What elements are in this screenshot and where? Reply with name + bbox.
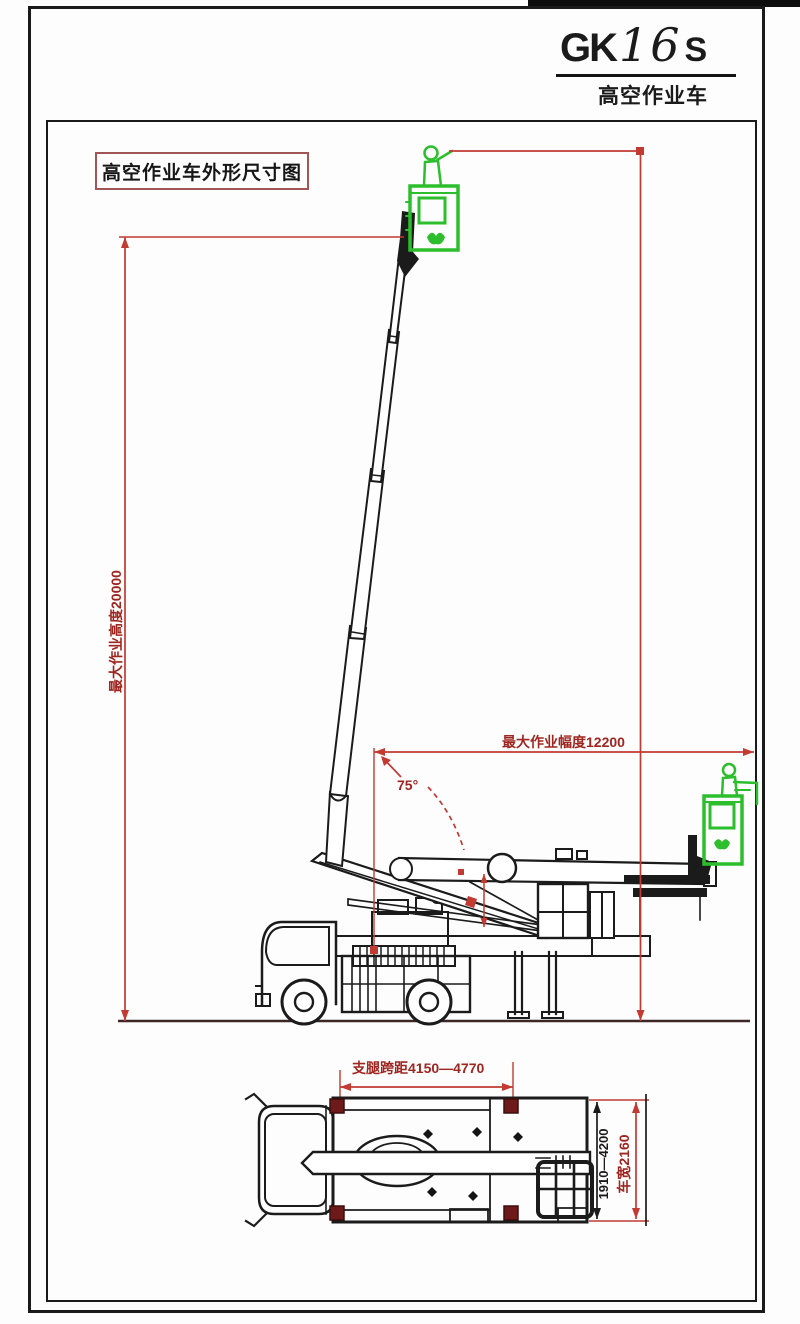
- work-baskets: [406, 147, 757, 865]
- top-operator-figure: [424, 147, 452, 187]
- truck-side-view: [256, 211, 716, 1024]
- dimension-drawing: 最大作业高度20000 最大作业幅度12200 75° 支腿跨距4150—477…: [0, 0, 800, 1324]
- boom-head: [397, 211, 419, 277]
- side-basket: [704, 796, 742, 864]
- boom-angle-label: 75°: [397, 777, 418, 793]
- wheels: [282, 980, 451, 1024]
- drawing-sheet: GK16S 高空作业车 高空作业车外形尺寸图: [0, 0, 800, 1324]
- vehicle-width-label: 车宽2160: [616, 1134, 632, 1193]
- truck-plan-view: [246, 1094, 592, 1226]
- outrigger-span-label: 支腿跨距4150—4770: [351, 1060, 485, 1076]
- max-reach-dimension-label: 最大作业幅度12200: [502, 734, 625, 750]
- side-operator-figure: [722, 764, 757, 804]
- outrigger-lateral-span-label: 1910—4200: [596, 1129, 611, 1200]
- telescopic-boom: [330, 214, 412, 801]
- max-height-dimension-label: 最大作业高度20000: [108, 570, 124, 693]
